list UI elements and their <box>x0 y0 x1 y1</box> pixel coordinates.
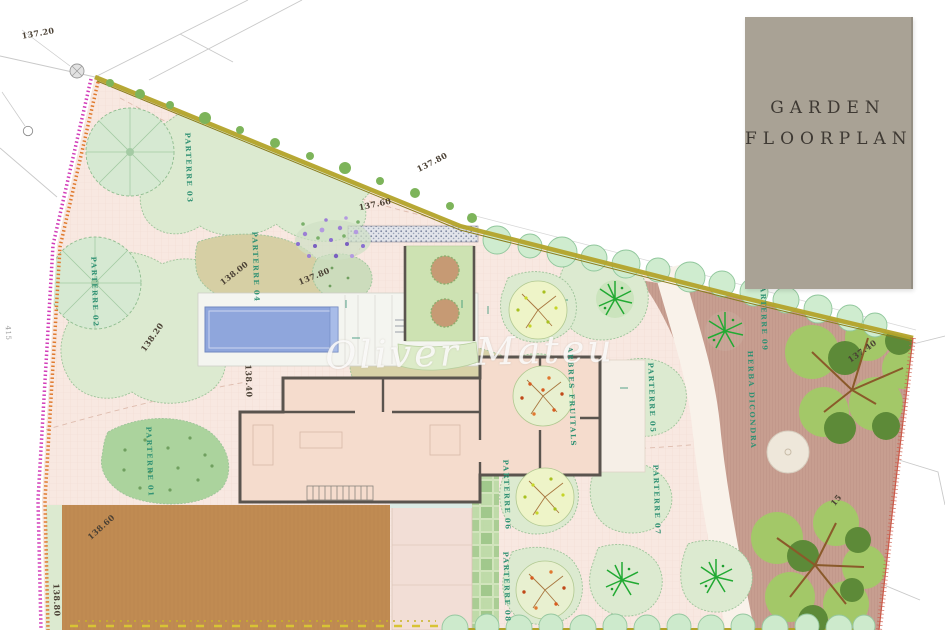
title-line-1: GARDEN <box>745 17 911 124</box>
survey-point-icon <box>23 126 32 135</box>
fruit-tree-icon <box>516 468 574 526</box>
title-block: GARDEN FLOORPLAN <box>745 17 913 289</box>
rosette-tree-icon <box>49 237 141 329</box>
swimming-pool <box>205 307 338 352</box>
rosette-tree-icon <box>86 108 174 196</box>
courtyard <box>398 246 478 370</box>
pine-tree-icon <box>596 280 634 318</box>
planting-circle-icon <box>431 256 459 284</box>
planting-circle-icon <box>431 299 459 327</box>
orange-tree-icon <box>513 366 573 426</box>
paved-terrace <box>392 505 472 630</box>
gravel-circle-icon <box>767 431 809 473</box>
fruit-tree-icon <box>509 281 567 339</box>
title-line-2: FLOORPLAN <box>745 124 911 155</box>
pine-tree-icon <box>705 311 745 351</box>
garden-floorplan-canvas: GARDEN FLOORPLAN Oliver Mateu PARTERRE 0… <box>0 0 945 630</box>
stairs-icon <box>307 486 373 500</box>
orange-tree-icon <box>516 561 574 619</box>
